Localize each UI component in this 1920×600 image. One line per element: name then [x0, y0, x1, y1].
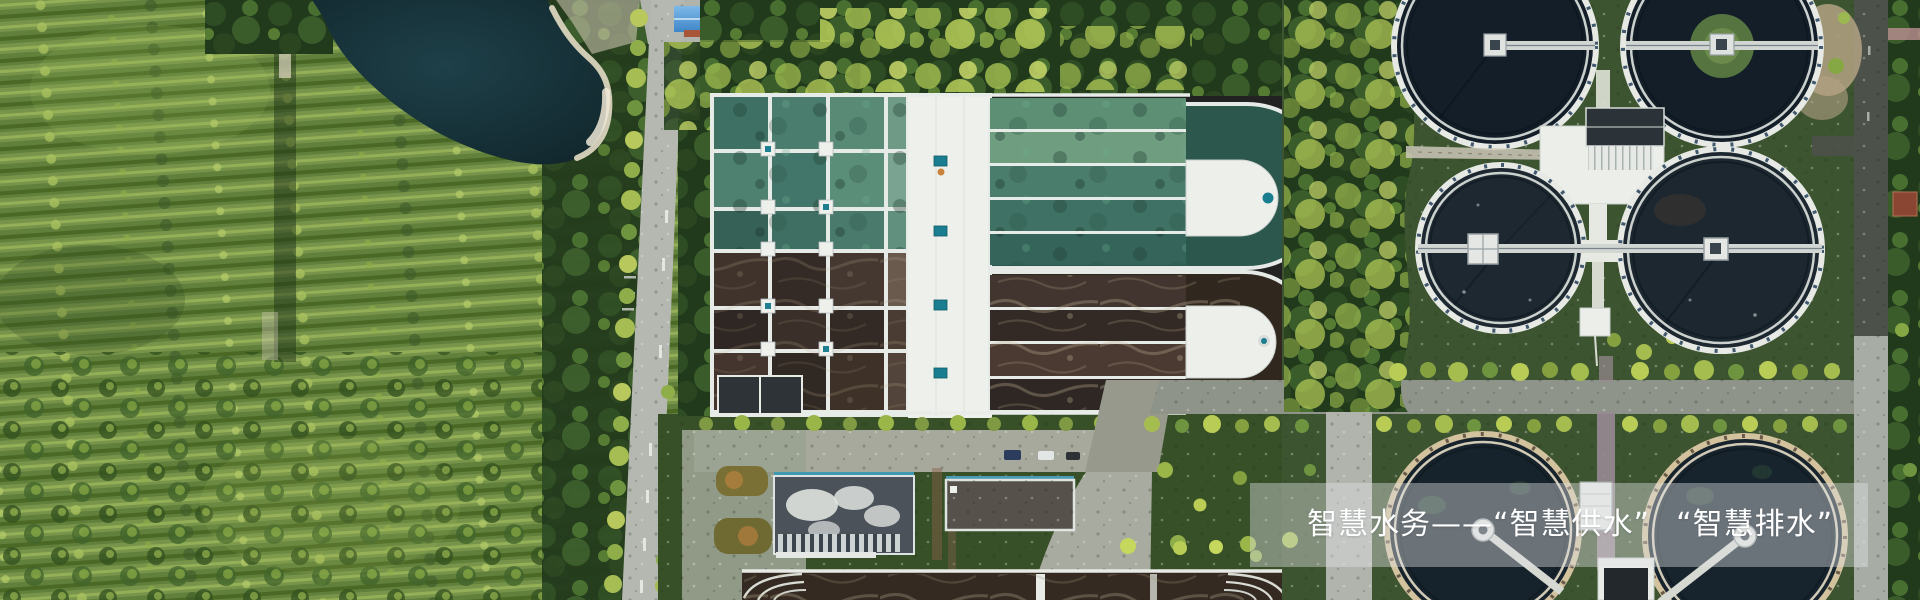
parked-car: [1038, 451, 1054, 460]
tree-belt: [678, 120, 714, 416]
hero-banner: 智慧水务——“智慧供水”“智慧排水”: [0, 0, 1920, 600]
central-walkway: [908, 93, 992, 418]
aeration-lanes-upper: [990, 98, 1329, 268]
caption-overlay: 智慧水务——“智慧供水”“智慧排水”: [1250, 483, 1868, 567]
field-path-shadow: [274, 28, 296, 362]
caption-dash: ——: [1431, 507, 1493, 542]
caption-term-supply: “智慧供水”: [1493, 507, 1650, 542]
caption-term-drain: “智慧排水”: [1676, 507, 1833, 542]
right-edge-trees: [1888, 0, 1920, 600]
caption-main: 智慧水务: [1307, 507, 1431, 542]
blower-house: [774, 472, 914, 558]
caption-text: 智慧水务——“智慧供水”“智慧排水”: [1307, 510, 1833, 540]
parked-car: [1066, 452, 1080, 460]
treatment-grid: [710, 93, 910, 417]
parked-car: [1004, 450, 1021, 460]
garage-building: [946, 476, 1074, 530]
